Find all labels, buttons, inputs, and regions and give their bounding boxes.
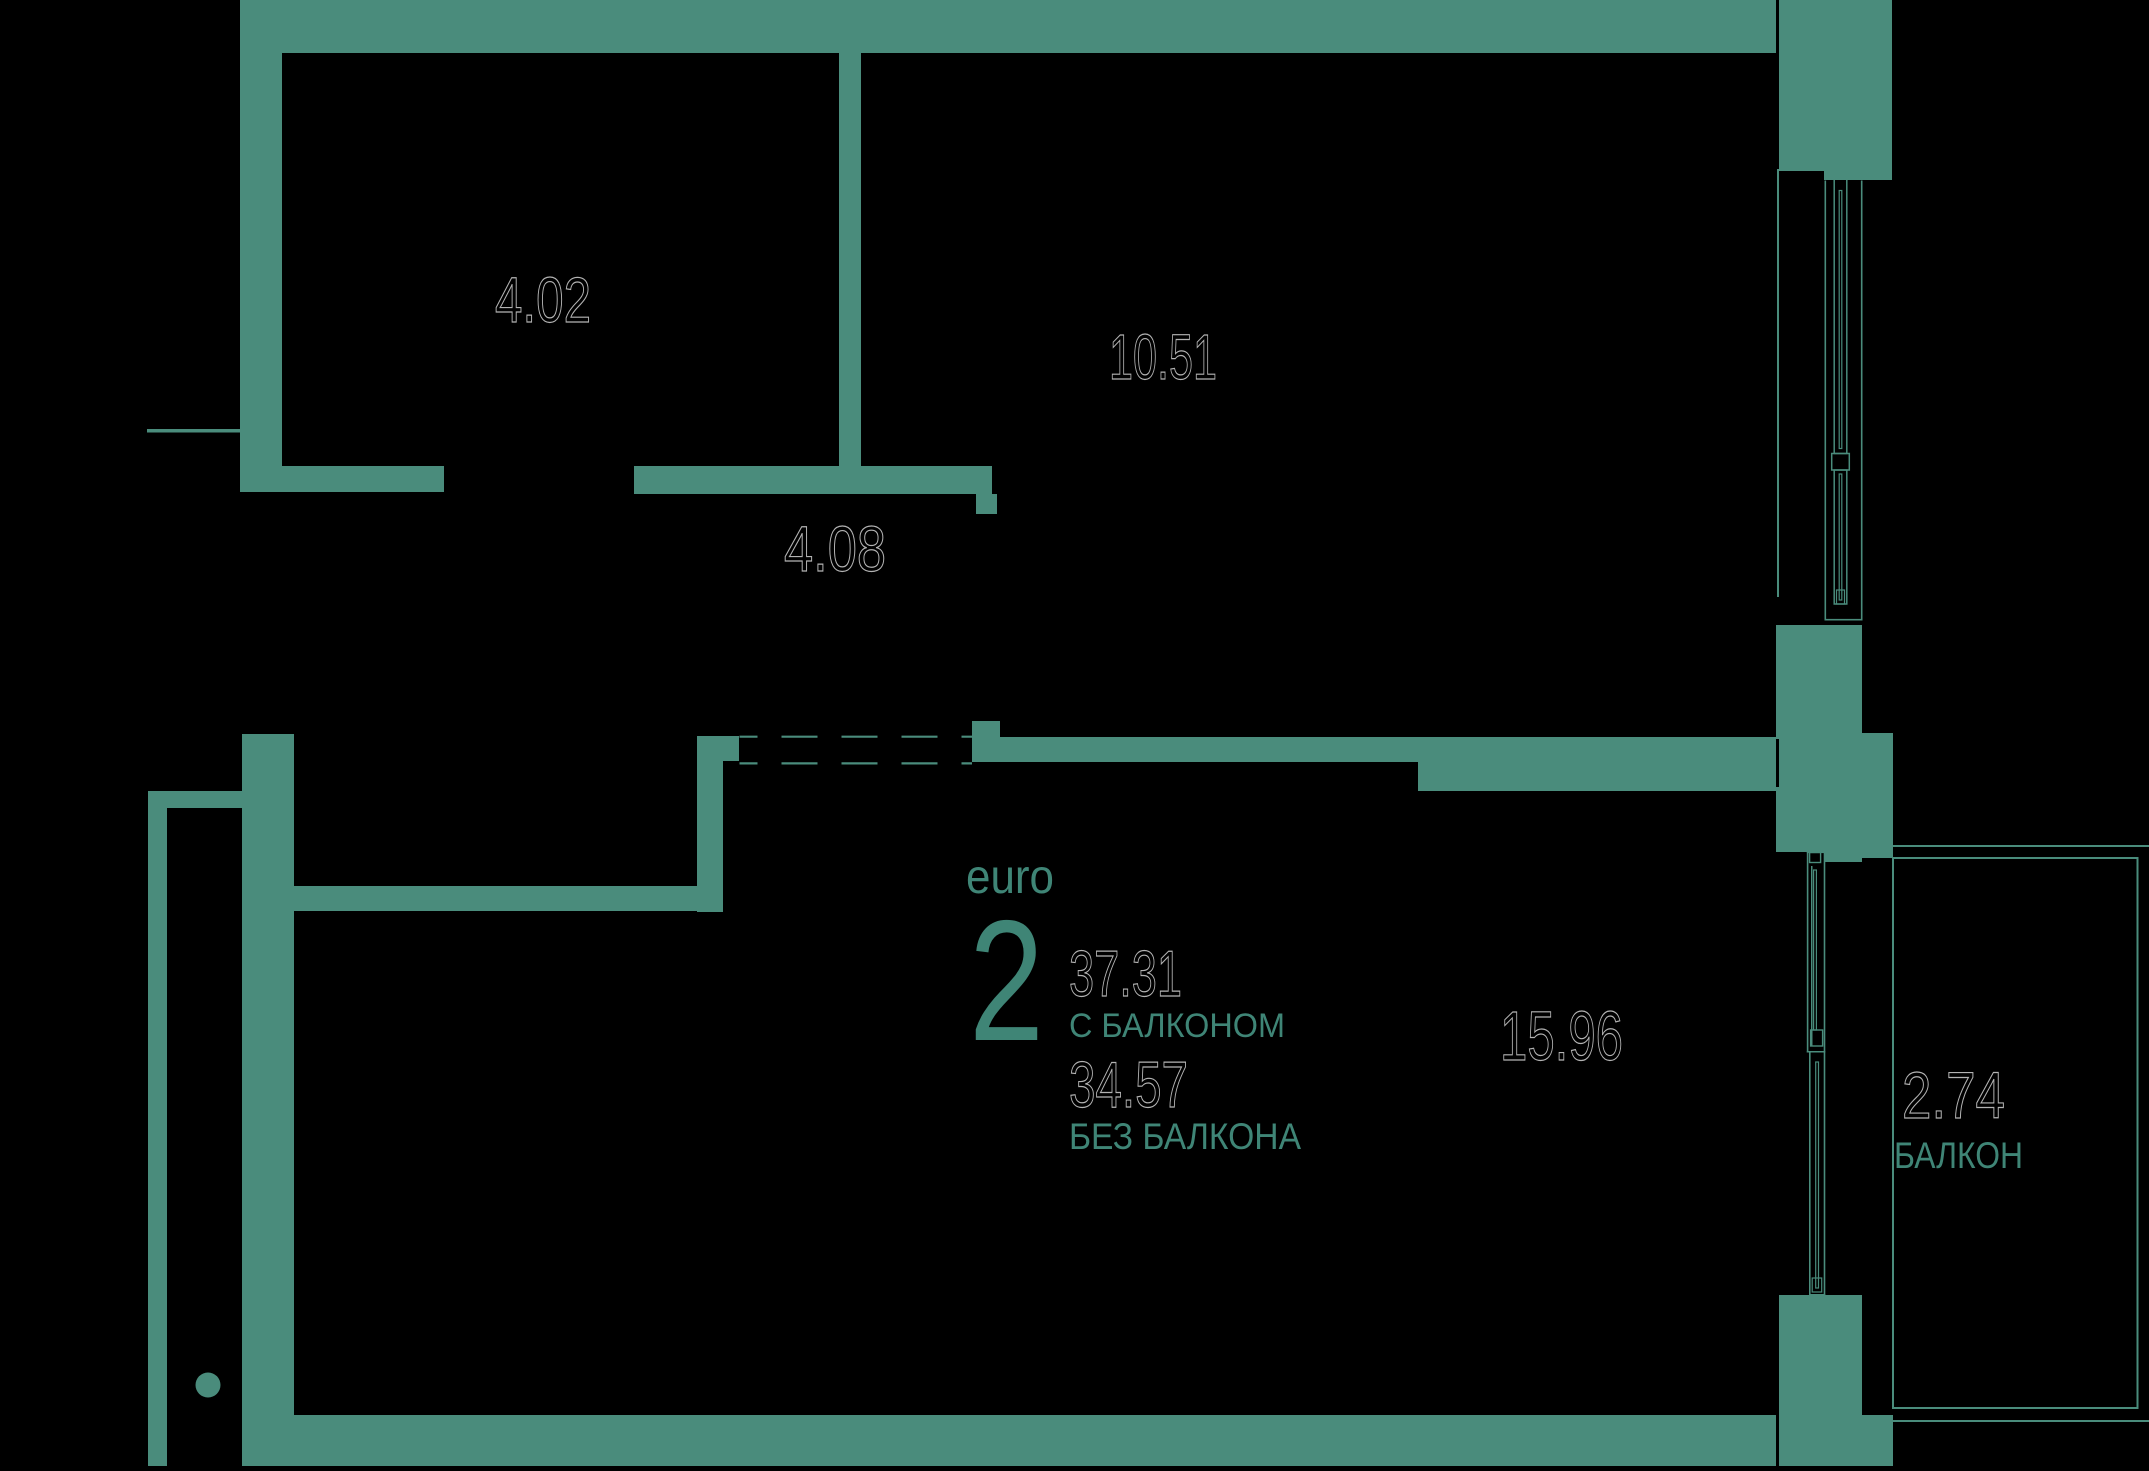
svg-text:10.51: 10.51 <box>1109 321 1217 393</box>
svg-text:БЕЗ БАЛКОНА: БЕЗ БАЛКОНА <box>1069 1116 1301 1157</box>
svg-text:С БАЛКОНОМ: С БАЛКОНОМ <box>1069 1007 1285 1045</box>
svg-text:15.96: 15.96 <box>1500 997 1623 1075</box>
svg-text:БАЛКОН: БАЛКОН <box>1894 1135 2023 1176</box>
svg-text:37.31: 37.31 <box>1069 937 1182 1010</box>
svg-text:34.57: 34.57 <box>1069 1048 1188 1121</box>
svg-text:4.08: 4.08 <box>784 513 886 585</box>
svg-text:2.74: 2.74 <box>1902 1058 2005 1132</box>
svg-text:4.02: 4.02 <box>495 264 591 336</box>
svg-text:2: 2 <box>969 885 1044 1077</box>
